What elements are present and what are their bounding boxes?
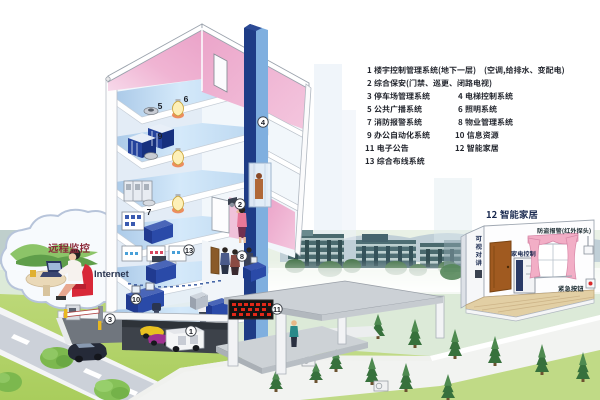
svg-text:6: 6 [184,94,189,104]
svg-text:7: 7 [147,207,152,217]
svg-text:Internet: Internet [94,269,130,280]
svg-text:8: 8 [240,252,244,261]
svg-text:9: 9 [158,131,163,141]
svg-text:3: 3 [108,315,112,324]
svg-text:1: 1 [189,327,193,336]
svg-text:11: 11 [273,305,281,314]
svg-text:10: 10 [132,295,140,304]
svg-text:5: 5 [158,101,163,111]
svg-text:2: 2 [238,200,242,209]
svg-text:13: 13 [185,246,193,255]
